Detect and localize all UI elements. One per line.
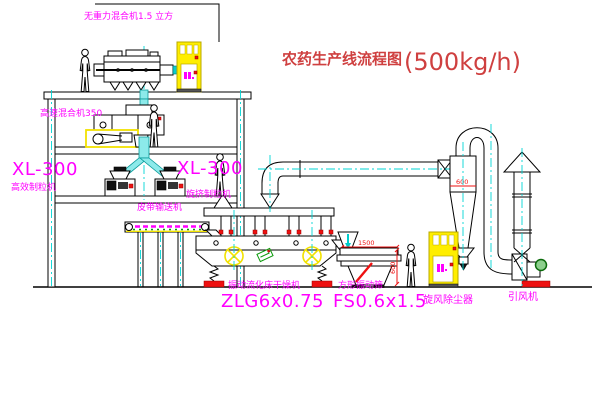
control-cabinet-roof — [177, 42, 201, 92]
mixer-down-pipe — [140, 90, 148, 99]
fan-motor — [536, 260, 547, 271]
fluid-bed-dryer — [196, 194, 336, 287]
cyclone-dimension: 600 — [456, 178, 468, 186]
conveyor-legs — [138, 232, 183, 287]
label-dryer-name: 振动流化床干燥机 — [228, 282, 300, 291]
sieve-length-dimension: 1500 — [358, 239, 375, 247]
label-granulator-left-model: XL-300 — [12, 161, 78, 179]
control-cabinet-ground — [429, 232, 458, 287]
drawing-title: 农药生产线流程图(500kg/h) — [282, 48, 521, 76]
label-cyclone: 旋风除尘器 — [423, 296, 473, 306]
person-ground — [406, 244, 416, 286]
title-capacity: (500kg/h) — [404, 48, 521, 76]
fan-base — [522, 281, 550, 287]
indicator-light — [195, 56, 198, 59]
process-flow-diagram: 600 — [0, 0, 600, 403]
motor-pulley — [93, 134, 103, 144]
label-belt-conveyor: 皮带输送机 — [137, 204, 182, 213]
exhaust-duct — [258, 155, 452, 212]
leader-line — [95, 4, 219, 42]
label-sieve-name: 方形振动筛 — [338, 282, 383, 291]
title-text: 农药生产线流程图 — [282, 50, 402, 68]
vibrating-sieve: 1500 600 — [332, 232, 401, 288]
label-fan: 引风机 — [508, 293, 538, 303]
label-high-speed-mixer: 高速混合机350 — [40, 110, 102, 119]
person-roof — [80, 49, 90, 91]
label-granulator-mid-model: XL-300 — [177, 160, 243, 178]
indicator-light — [453, 247, 456, 250]
label-sieve-model: FS0.6x1.5 — [333, 293, 427, 311]
label-granulator-mid-name: 旋挤制粒机 — [186, 191, 231, 200]
label-granulator-left-name: 高效制粒机 — [11, 184, 56, 193]
label-gravity-free-mixer: 无重力混合机1.5 立方 — [84, 13, 173, 22]
label-dryer-model: ZLG6x0.75 — [221, 293, 324, 311]
dryer-inlet-stubs — [219, 216, 333, 236]
sieve-width-dimension: 600 — [389, 262, 397, 274]
